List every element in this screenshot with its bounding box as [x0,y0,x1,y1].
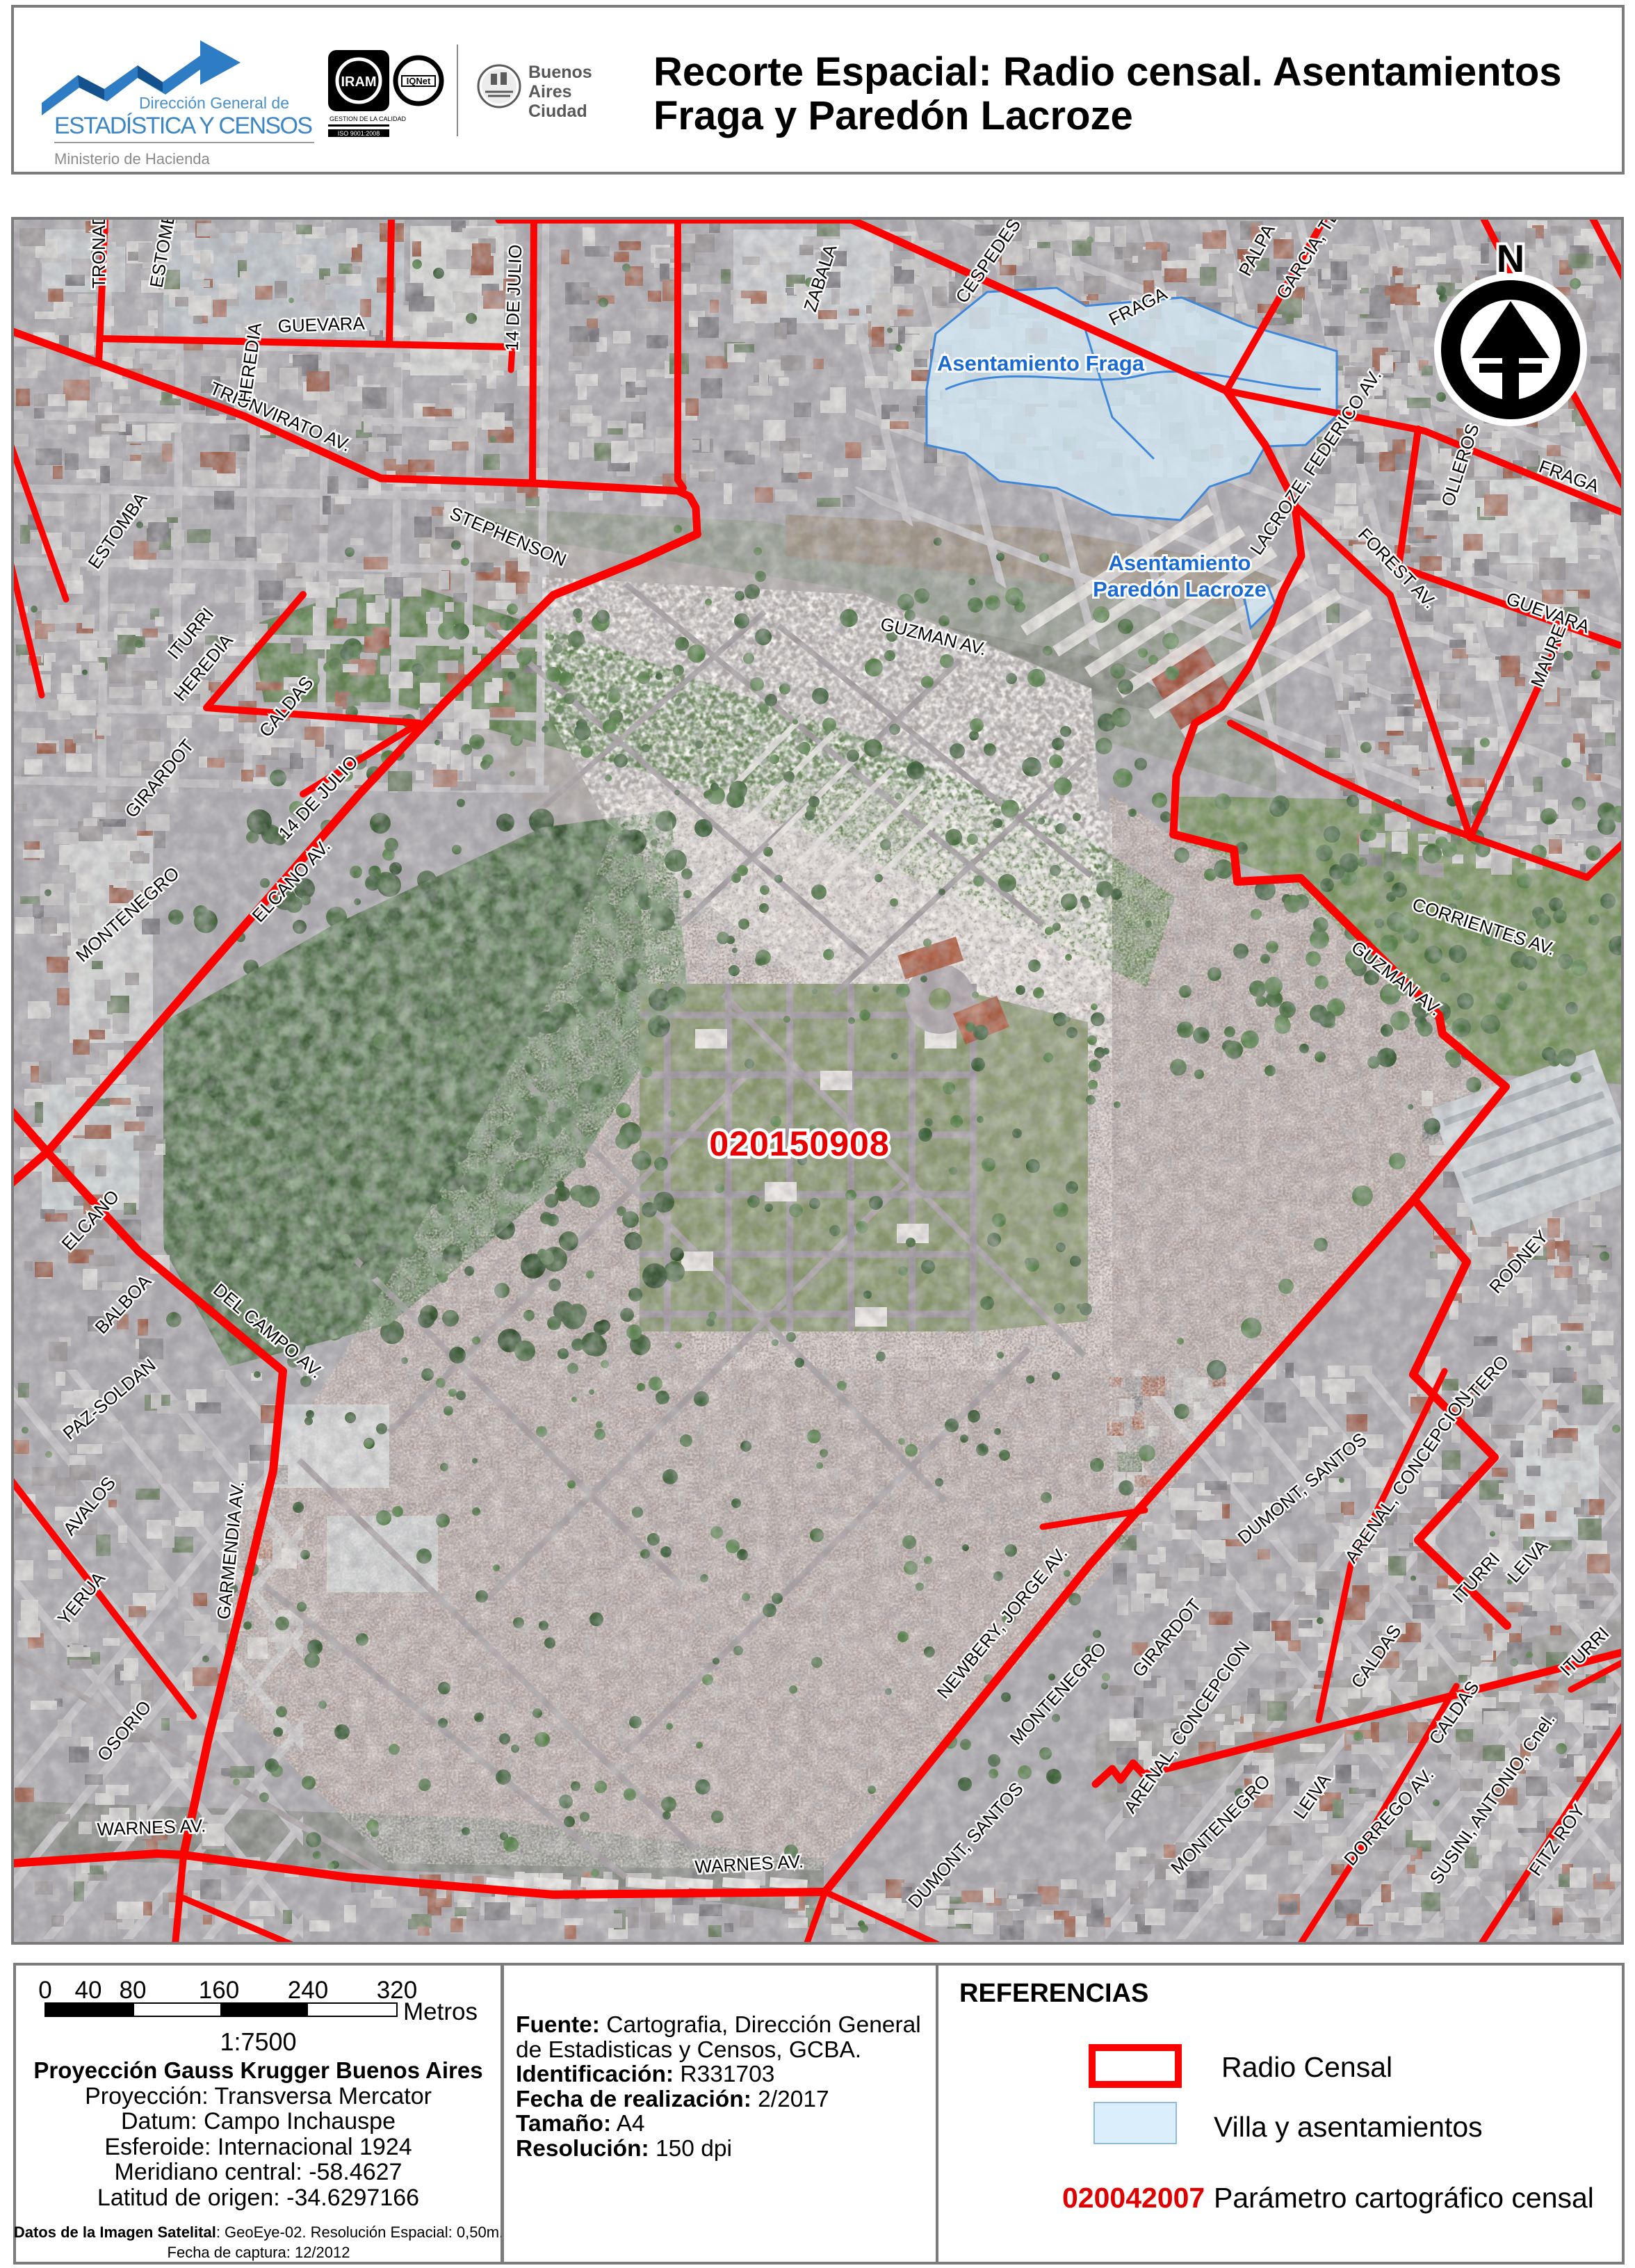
svg-text:ISO 9001:2008: ISO 9001:2008 [338,130,380,137]
svg-text:Ciudad: Ciudad [528,102,587,120]
svg-text:GESTION DE LA CALIDAD: GESTION DE LA CALIDAD [330,115,407,122]
svg-text:Buenos: Buenos [528,63,592,82]
svg-text:IRAM: IRAM [341,74,376,90]
svg-text:Aires: Aires [528,82,572,102]
svg-text:Paredón Lacroze: Paredón Lacroze [1093,577,1267,601]
svg-text:N: N [1497,236,1524,280]
svg-text:Dirección General de: Dirección General de [139,94,289,112]
svg-text:Asentamiento Fraga: Asentamiento Fraga [937,351,1145,375]
svg-text:020150908: 020150908 [709,1124,889,1163]
svg-text:Asentamiento: Asentamiento [1109,551,1251,575]
svg-text:GUEVARA: GUEVARA [277,313,366,337]
svg-text:WARNES AV.: WARNES AV. [97,1815,206,1840]
svg-text:ESTADÍSTICA Y CENSOS: ESTADÍSTICA Y CENSOS [54,113,313,139]
svg-text:IQNet: IQNet [407,76,431,86]
svg-text:Ministerio de Hacienda: Ministerio de Hacienda [54,150,211,168]
svg-text:14 DE JULIO: 14 DE JULIO [501,244,526,351]
svg-text:TRONADOR: TRONADOR [88,220,109,289]
